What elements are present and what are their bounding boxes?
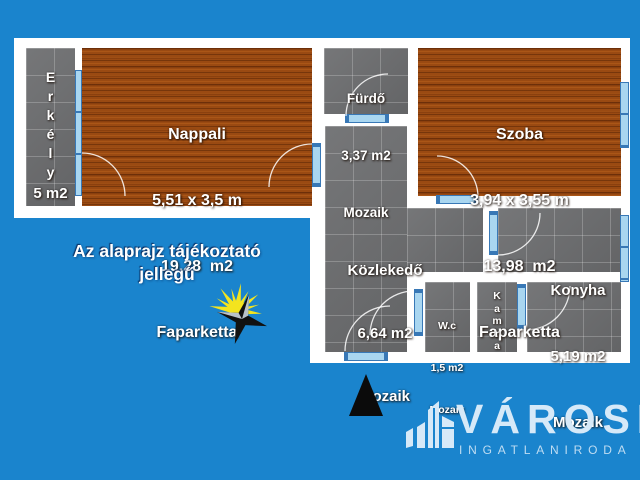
kamra-letter: a bbox=[494, 340, 500, 353]
kamra-letter: K bbox=[493, 290, 501, 303]
nappali-dims: 5,51 x 3,5 m bbox=[82, 190, 312, 212]
erkely-area: 5 m2 bbox=[33, 184, 67, 203]
logo-subtitle: INGATLANIRODA bbox=[459, 443, 632, 457]
erkely-letter: r bbox=[48, 87, 53, 106]
logo-buildings-icon bbox=[402, 398, 458, 456]
erkely-letter: k bbox=[47, 106, 55, 125]
szoba-name: Szoba bbox=[418, 124, 621, 146]
logo-title: VÁROSI bbox=[456, 399, 640, 439]
sun-icon bbox=[204, 283, 272, 345]
kozlekedo-name: Közlekedő bbox=[325, 260, 445, 281]
kamra-letter: m bbox=[492, 315, 501, 328]
wc-area: 1,5 m2 bbox=[423, 361, 471, 375]
nappali-name: Nappali bbox=[82, 124, 312, 146]
room-nappali-label: Nappali 5,51 x 3,5 m 19,28 m2 Faparketta bbox=[82, 80, 312, 388]
konyha-area: 5,19 m2 bbox=[518, 346, 638, 368]
sun-rays bbox=[209, 283, 263, 318]
kamra-letter: a bbox=[494, 303, 500, 316]
erkely-letter: y bbox=[47, 163, 55, 182]
erkely-letter: E bbox=[46, 68, 55, 87]
north-arrow-icon bbox=[349, 374, 383, 416]
compass-star bbox=[210, 287, 272, 345]
nappali-floor-type: Faparketta bbox=[82, 322, 312, 344]
room-kamra-label: K a m r a bbox=[477, 290, 517, 353]
kamra-letter: r bbox=[495, 328, 499, 341]
furdo-area: 3,37 m2 bbox=[322, 146, 410, 165]
disclaimer-note: Az alaprajz tájékoztató jellegű bbox=[38, 240, 296, 286]
szoba-dims: 3,94 x 3,55 m bbox=[418, 190, 621, 212]
konyha-name: Konyha bbox=[518, 280, 638, 302]
room-erkely-label: E r k é l y 5 m2 bbox=[26, 68, 75, 203]
erkely-letter: l bbox=[49, 144, 53, 163]
disclaimer-line1: Az alaprajz tájékoztató bbox=[38, 240, 296, 263]
floorplan-canvas: E r k é l y 5 m2 Nappali 5,51 x 3,5 m 19… bbox=[0, 0, 640, 480]
furdo-name: Fürdő bbox=[322, 89, 410, 108]
erkely-letter: é bbox=[47, 125, 55, 144]
wc-name: W.c bbox=[423, 319, 471, 333]
